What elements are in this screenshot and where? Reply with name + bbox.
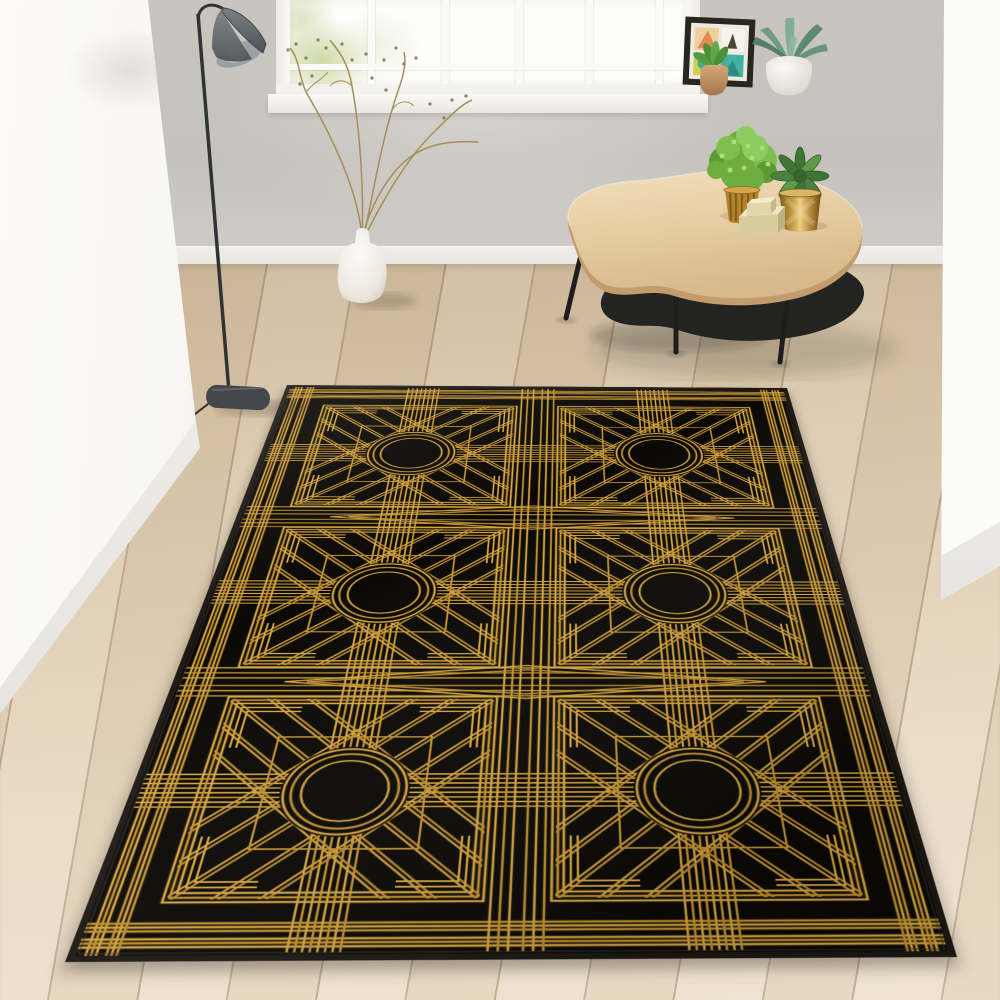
window — [276, 0, 700, 112]
window-sill — [268, 94, 708, 113]
window-frame-left — [276, 0, 290, 96]
window-panes — [290, 0, 686, 84]
room-scene — [0, 0, 1000, 1000]
window-mullion — [516, 0, 523, 84]
window-mullion-horizontal — [290, 64, 686, 70]
window-mullion — [368, 0, 375, 84]
window-mullion — [586, 0, 593, 84]
window-mullion — [656, 0, 663, 84]
window-mullion — [442, 0, 449, 84]
window-frame-right — [686, 0, 700, 96]
